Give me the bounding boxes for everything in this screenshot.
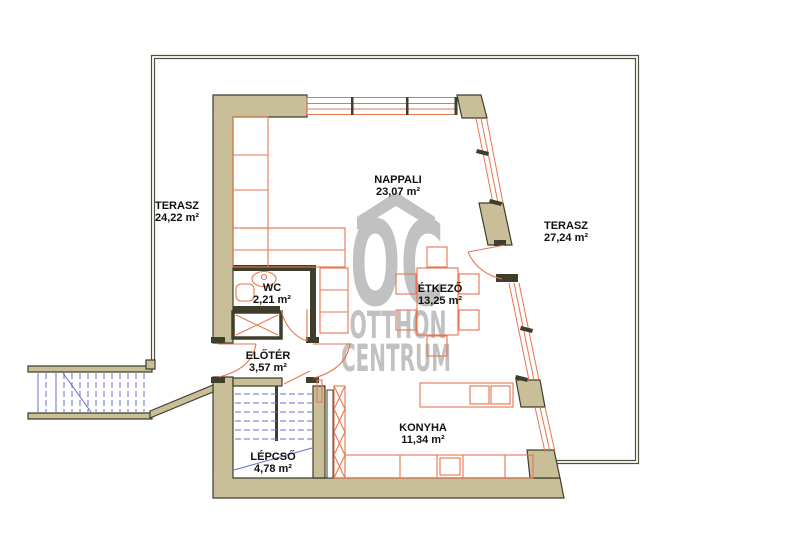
room-label-eloter: ELŐTÉR 3,57 m² [246, 349, 291, 374]
room-area: 2,21 m² [253, 294, 291, 306]
watermark-line2: CENTRUM [341, 337, 451, 380]
room-area: 27,24 m² [544, 232, 588, 244]
external-stairs [38, 373, 144, 412]
chair [459, 310, 479, 330]
kitchen-shaft [334, 386, 345, 478]
room-name: TERASZ [544, 220, 588, 232]
room-name: ELŐTÉR [246, 349, 291, 362]
floor-plan: OC OTTHON CENTRUM [0, 0, 800, 553]
floor-plan-page: OC OTTHON CENTRUM [0, 0, 800, 553]
kitchen-sink [440, 458, 460, 475]
room-area: 23,07 m² [376, 186, 420, 198]
room-name: ÉTKEZŐ [418, 282, 463, 295]
room-label-lepcso: LÉPCSŐ 4,78 m² [250, 450, 296, 475]
room-area: 11,34 m² [401, 434, 445, 446]
room-area: 3,57 m² [249, 362, 287, 374]
room-name: TERASZ [155, 200, 199, 212]
room-label-terasz-right: TERASZ 27,24 m² [544, 220, 588, 244]
room-area: 4,78 m² [254, 463, 292, 475]
room-label-nappali: NAPPALI 23,07 m² [374, 174, 421, 198]
room-name: NAPPALI [374, 174, 421, 186]
room-label-terasz-left: TERASZ 24,22 m² [155, 200, 199, 224]
room-name: KONYHA [399, 422, 447, 434]
room-label-konyha: KONYHA 11,34 m² [399, 422, 447, 446]
room-area: 13,25 m² [418, 295, 462, 307]
room-name: LÉPCSŐ [250, 450, 296, 463]
sink-icon [236, 284, 254, 301]
stair-thin-wall [327, 390, 333, 478]
room-label-etkezo: ÉTKEZŐ 13,25 m² [418, 282, 463, 307]
room-area: 24,22 m² [155, 212, 199, 224]
wc-door [281, 309, 307, 341]
room-name: WC [263, 282, 281, 294]
